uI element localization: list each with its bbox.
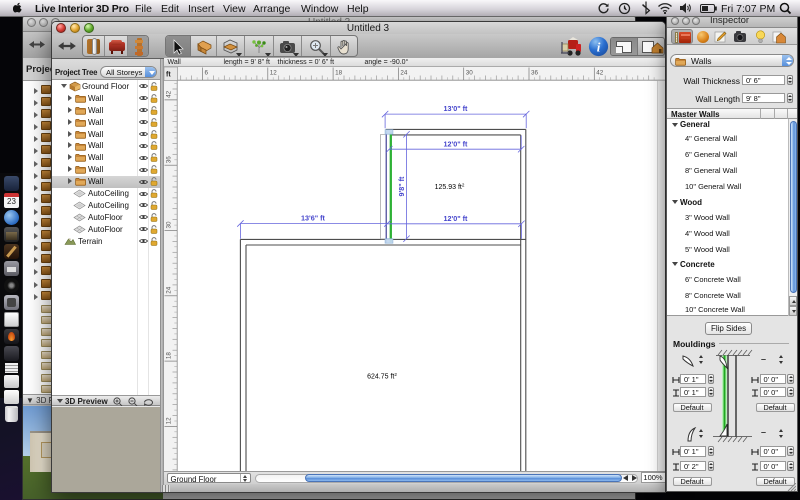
svg-text:12: 12 xyxy=(165,416,172,424)
svg-text:30: 30 xyxy=(165,220,172,228)
svg-text:18: 18 xyxy=(165,351,172,359)
svg-text:9'8" ft: 9'8" ft xyxy=(396,175,405,196)
svg-text:12'0" ft: 12'0" ft xyxy=(443,139,467,148)
svg-text:42: 42 xyxy=(165,90,172,98)
svg-text:18: 18 xyxy=(335,69,343,76)
svg-text:36: 36 xyxy=(531,69,539,76)
svg-text:13'6" ft: 13'6" ft xyxy=(301,213,325,222)
svg-text:42: 42 xyxy=(596,69,604,76)
svg-text:ft: ft xyxy=(166,71,171,78)
svg-text:6: 6 xyxy=(204,69,208,76)
svg-text:36: 36 xyxy=(165,155,172,163)
svg-text:i: i xyxy=(597,40,601,55)
svg-text:13'0" ft: 13'0" ft xyxy=(443,104,467,113)
svg-text:12: 12 xyxy=(269,69,277,76)
svg-text:24: 24 xyxy=(165,286,172,294)
svg-text:30: 30 xyxy=(465,69,473,76)
svg-text:125.93 ft2: 125.93 ft2 xyxy=(434,182,464,190)
svg-text:12'0" ft: 12'0" ft xyxy=(443,213,467,222)
svg-text:624.75 ft2: 624.75 ft2 xyxy=(367,372,397,380)
svg-text:24: 24 xyxy=(400,69,408,76)
